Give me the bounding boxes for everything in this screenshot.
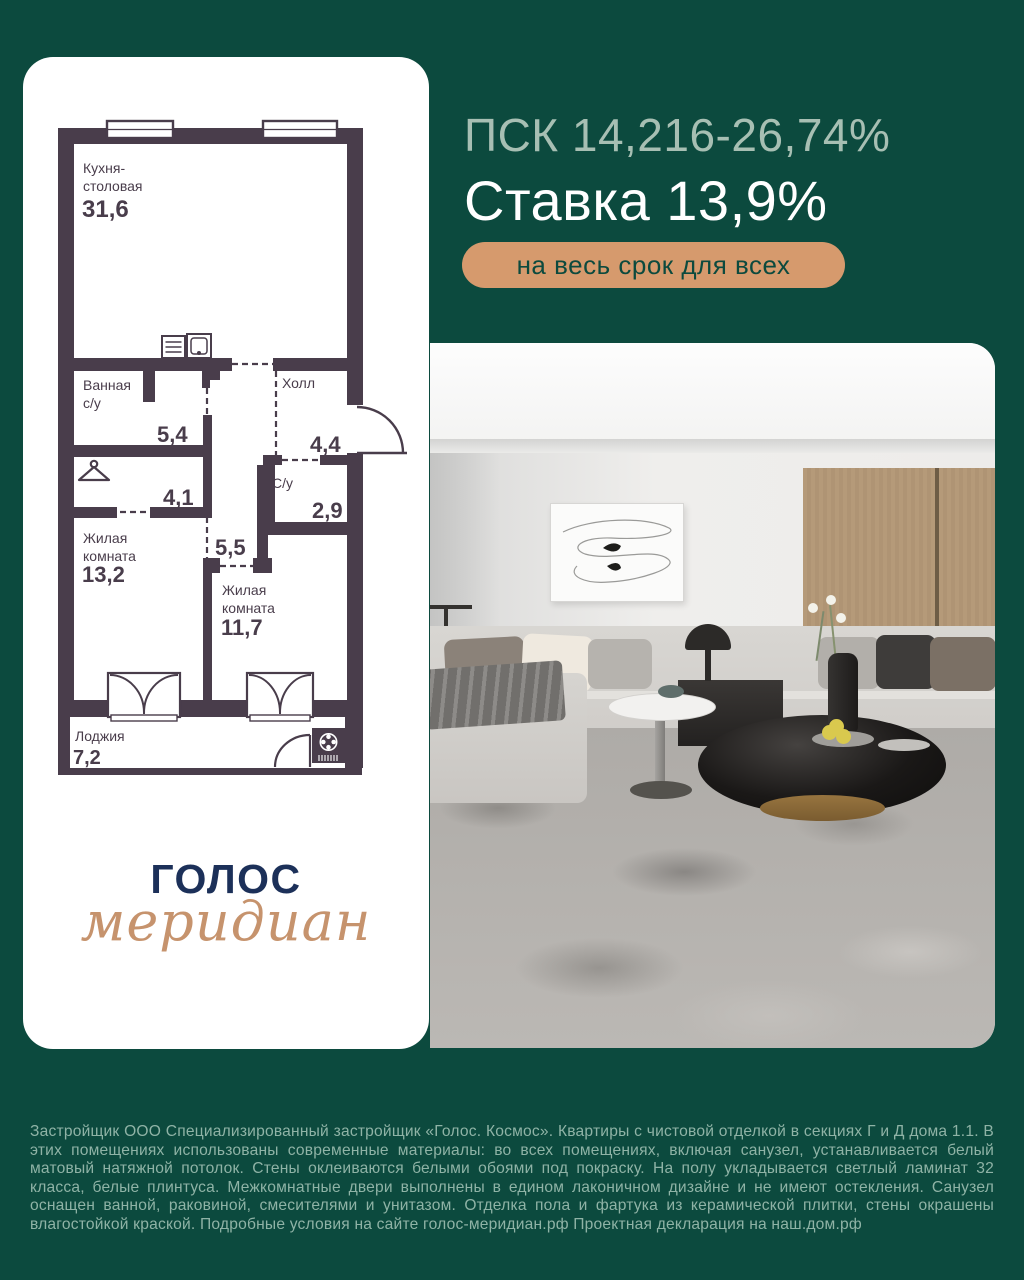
room-area: 4,4 bbox=[310, 432, 341, 457]
room-area: 7,2 bbox=[73, 747, 101, 769]
psk-rate-line: ПСК 14,216-26,74% bbox=[464, 108, 1004, 162]
room-area: 11,7 bbox=[221, 615, 263, 640]
photo-flower bbox=[826, 595, 836, 605]
photo-cushion bbox=[588, 639, 652, 689]
room-label: Холл bbox=[282, 375, 315, 391]
room-area: 5,4 bbox=[157, 422, 188, 447]
photo-side-table bbox=[608, 693, 716, 721]
photo-side-table-stem bbox=[655, 717, 665, 789]
main-rate-line: Ставка 13,9% bbox=[464, 168, 1004, 233]
room-label: Жилая bbox=[222, 582, 266, 598]
room-area: 5,5 bbox=[215, 535, 246, 560]
ventilation-fan-icon bbox=[312, 728, 345, 763]
floor-plan-card: Кухня- столовая 31,6 Ванная с/у 5,4 Холл… bbox=[23, 57, 429, 1049]
room-area: 4,1 bbox=[163, 485, 194, 510]
room-label: Кухня- bbox=[83, 160, 125, 176]
photo-tray bbox=[878, 739, 930, 751]
interior-photo bbox=[430, 343, 995, 1048]
room-label: с/у bbox=[83, 395, 101, 411]
wardrobe-hanger-icon bbox=[79, 461, 109, 480]
kitchen-sink-icon bbox=[162, 334, 211, 358]
photo-ceiling bbox=[430, 343, 995, 443]
room-label: столовая bbox=[83, 178, 143, 194]
room-area: 31,6 bbox=[82, 196, 129, 223]
brand-logo-script: меридиан bbox=[23, 890, 429, 953]
photo-coffee-table-base bbox=[760, 795, 885, 821]
photo-flower bbox=[836, 613, 846, 623]
legal-disclaimer: Застройщик ООО Специализированный застро… bbox=[30, 1123, 994, 1234]
photo-wall-art bbox=[550, 503, 684, 602]
room-label: Жилая bbox=[83, 530, 127, 546]
room-area: 13,2 bbox=[82, 562, 125, 587]
entrance-door-icon bbox=[357, 407, 407, 453]
photo-cushion bbox=[930, 637, 995, 691]
photo-flower bbox=[808, 603, 818, 613]
room-area: 2,9 bbox=[312, 498, 343, 523]
photo-lemon bbox=[829, 719, 844, 734]
floor-plan-diagram: Кухня- столовая 31,6 Ванная с/у 5,4 Холл… bbox=[23, 57, 429, 807]
loggia-door-icon bbox=[275, 735, 310, 767]
photo-throw-blanket bbox=[430, 660, 566, 730]
ad-poster: { "header": { "psk": "ПСК 14,216-26,74%"… bbox=[0, 0, 1024, 1280]
photo-decor-bowl bbox=[658, 685, 684, 698]
offer-badge: на весь срок для всех bbox=[462, 242, 845, 288]
room-label: Лоджия bbox=[75, 728, 125, 744]
photo-floor-lamp bbox=[430, 605, 472, 609]
room-label: С/у bbox=[272, 475, 293, 491]
room-label: комната bbox=[222, 600, 275, 616]
photo-cushion bbox=[876, 635, 936, 689]
photo-table-lamp-stem bbox=[705, 649, 711, 681]
headline-block: ПСК 14,216-26,74% Ставка 13,9% bbox=[464, 108, 1004, 233]
room-label: Ванная bbox=[83, 377, 131, 393]
photo-side-table-base bbox=[630, 781, 692, 799]
